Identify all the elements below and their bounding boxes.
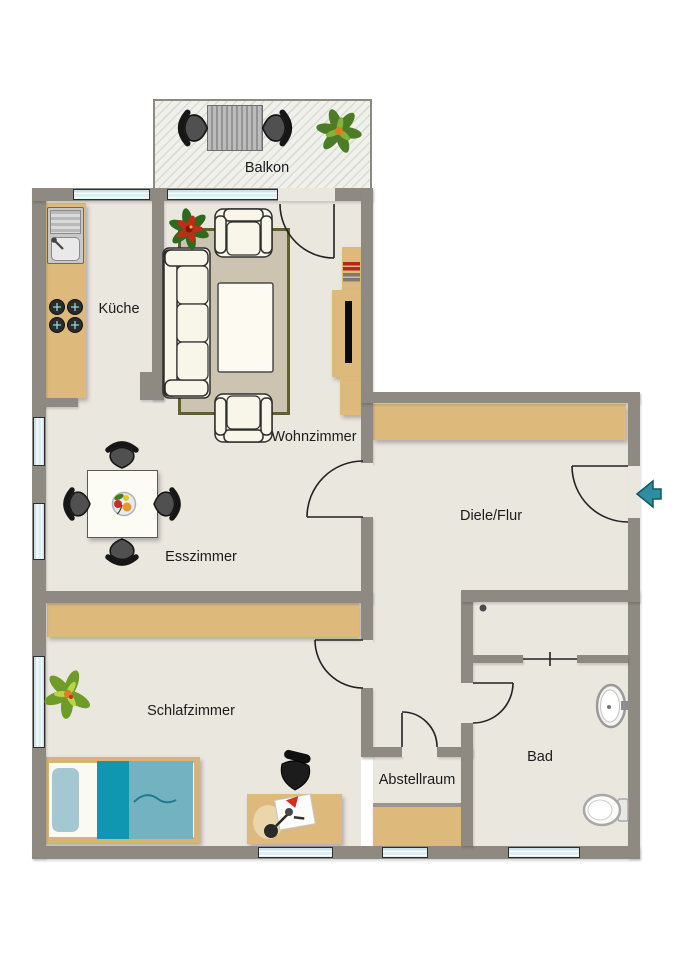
floor-plan: Balkon Küche Wohnzimmer Esszimmer Diele/… <box>0 0 678 960</box>
door-gap-bath <box>461 683 473 723</box>
wall-outer-right <box>628 392 640 858</box>
living-room-rug <box>178 228 290 415</box>
dining-table <box>87 470 158 538</box>
window-storage <box>382 847 428 858</box>
wall-kitchen-divider-end <box>140 372 164 400</box>
wall-kitchen-stub <box>44 398 78 407</box>
door-gap-balcony <box>278 188 335 201</box>
wall-bath-left-lower <box>461 723 473 846</box>
storage-shelf <box>373 803 461 848</box>
wall-kitchen-divider <box>152 201 164 400</box>
room-label-balkon: Balkon <box>245 160 289 176</box>
kitchen-sink-drainboard <box>50 210 81 234</box>
window-dining-lower <box>33 503 45 560</box>
wall-storage-top-left <box>361 747 402 757</box>
door-gap-entry <box>628 466 640 518</box>
wall-bedroom-right-upper <box>361 603 373 640</box>
window-kitchen <box>73 189 150 200</box>
living-room-shelf <box>342 247 361 290</box>
tv-board <box>332 290 361 377</box>
wall-bath-top <box>461 590 640 602</box>
wall-bath-left-upper <box>461 590 473 683</box>
wall-livingroom-right-upper <box>361 188 373 463</box>
room-label-bad: Bad <box>527 749 553 765</box>
hallway-wardrobe <box>373 404 626 440</box>
bed-blanket <box>129 761 193 839</box>
room-label-schlafzimmer: Schlafzimmer <box>147 703 235 719</box>
room-label-kueche: Küche <box>98 301 139 317</box>
balcony-table <box>207 105 263 151</box>
window-bath <box>508 847 580 858</box>
door-gap-storage <box>402 747 437 757</box>
desk <box>247 794 342 844</box>
bed-pillow <box>52 768 79 832</box>
window-dining-upper <box>33 417 45 466</box>
wall-bath-partition-left <box>473 655 523 663</box>
wall-bedroom-top <box>46 591 373 603</box>
window-bedroom-bottom <box>258 847 333 858</box>
living-room-sideboard <box>340 377 361 415</box>
bed-blanket-fold <box>97 761 129 839</box>
room-label-abstellraum: Abstellraum <box>379 772 456 788</box>
bedroom-wardrobe <box>47 601 359 637</box>
wall-hallway-top <box>361 392 640 403</box>
window-livingroom <box>167 189 278 200</box>
wall-bath-partition-right <box>577 655 628 663</box>
room-label-wohnzimmer: Wohnzimmer <box>271 429 356 445</box>
door-gap-diningroom <box>361 463 373 517</box>
window-bedroom-left <box>33 656 45 748</box>
room-label-diele: Diele/Flur <box>460 508 522 524</box>
entry-arrow-icon <box>637 481 661 507</box>
door-gap-bedroom <box>361 640 373 688</box>
kitchen-sink-basin <box>51 237 80 261</box>
room-label-esszimmer: Esszimmer <box>165 549 237 565</box>
